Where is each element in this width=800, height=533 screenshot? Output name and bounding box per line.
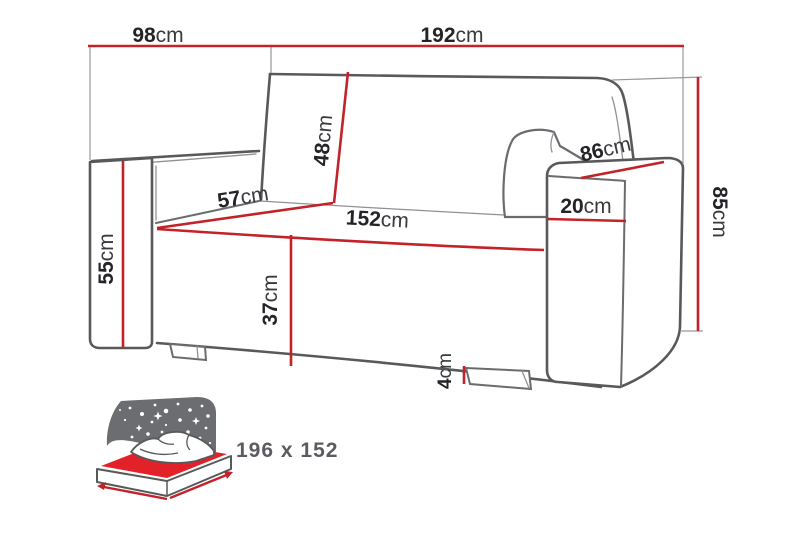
bed-size-label: 196 x 152 [236,439,338,462]
sofa-bed-size-icon: 196 x 152 [97,397,338,499]
dimension-label-leg-height: 4cm [435,353,456,389]
dimension-label-total-height: 85cm [708,186,731,237]
sofa-dimensions-diagram: 98cm 192cm 48cm 57cm 152cm 86cm 20cm 55c… [0,0,800,533]
dimension-label-seat-height: 37cm [259,274,282,325]
dimension-label-armrest-width: 20cm [560,195,611,218]
dimension-label-armrest-height: 55cm [95,233,118,284]
diagram-canvas: 98cm 192cm 48cm 57cm 152cm 86cm 20cm 55c… [0,0,800,533]
dimension-label-backrest-height: 48cm [310,114,337,167]
dimension-label-depth: 98cm [132,24,183,47]
dimension-label-seat-width: 152cm [345,206,409,232]
dimension-label-width: 192cm [420,24,483,47]
sofa-right-arm [547,158,683,387]
